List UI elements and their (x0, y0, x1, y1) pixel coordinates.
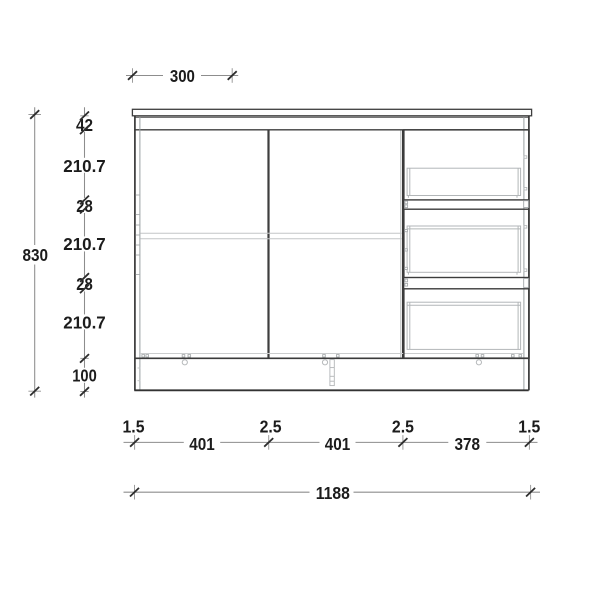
svg-text:1188: 1188 (316, 483, 350, 503)
svg-text:2.5: 2.5 (392, 417, 414, 437)
svg-text:210.7: 210.7 (63, 156, 106, 176)
svg-text:42: 42 (76, 115, 93, 135)
svg-text:210.7: 210.7 (63, 234, 106, 254)
svg-text:1.5: 1.5 (123, 417, 145, 437)
svg-text:210.7: 210.7 (63, 312, 106, 332)
svg-text:100: 100 (72, 366, 97, 386)
svg-text:830: 830 (23, 245, 49, 265)
svg-text:300: 300 (170, 66, 195, 86)
svg-text:401: 401 (189, 434, 215, 454)
svg-text:378: 378 (455, 434, 481, 454)
svg-text:1.5: 1.5 (518, 417, 540, 437)
svg-text:2.5: 2.5 (260, 417, 282, 437)
svg-text:401: 401 (325, 434, 351, 454)
